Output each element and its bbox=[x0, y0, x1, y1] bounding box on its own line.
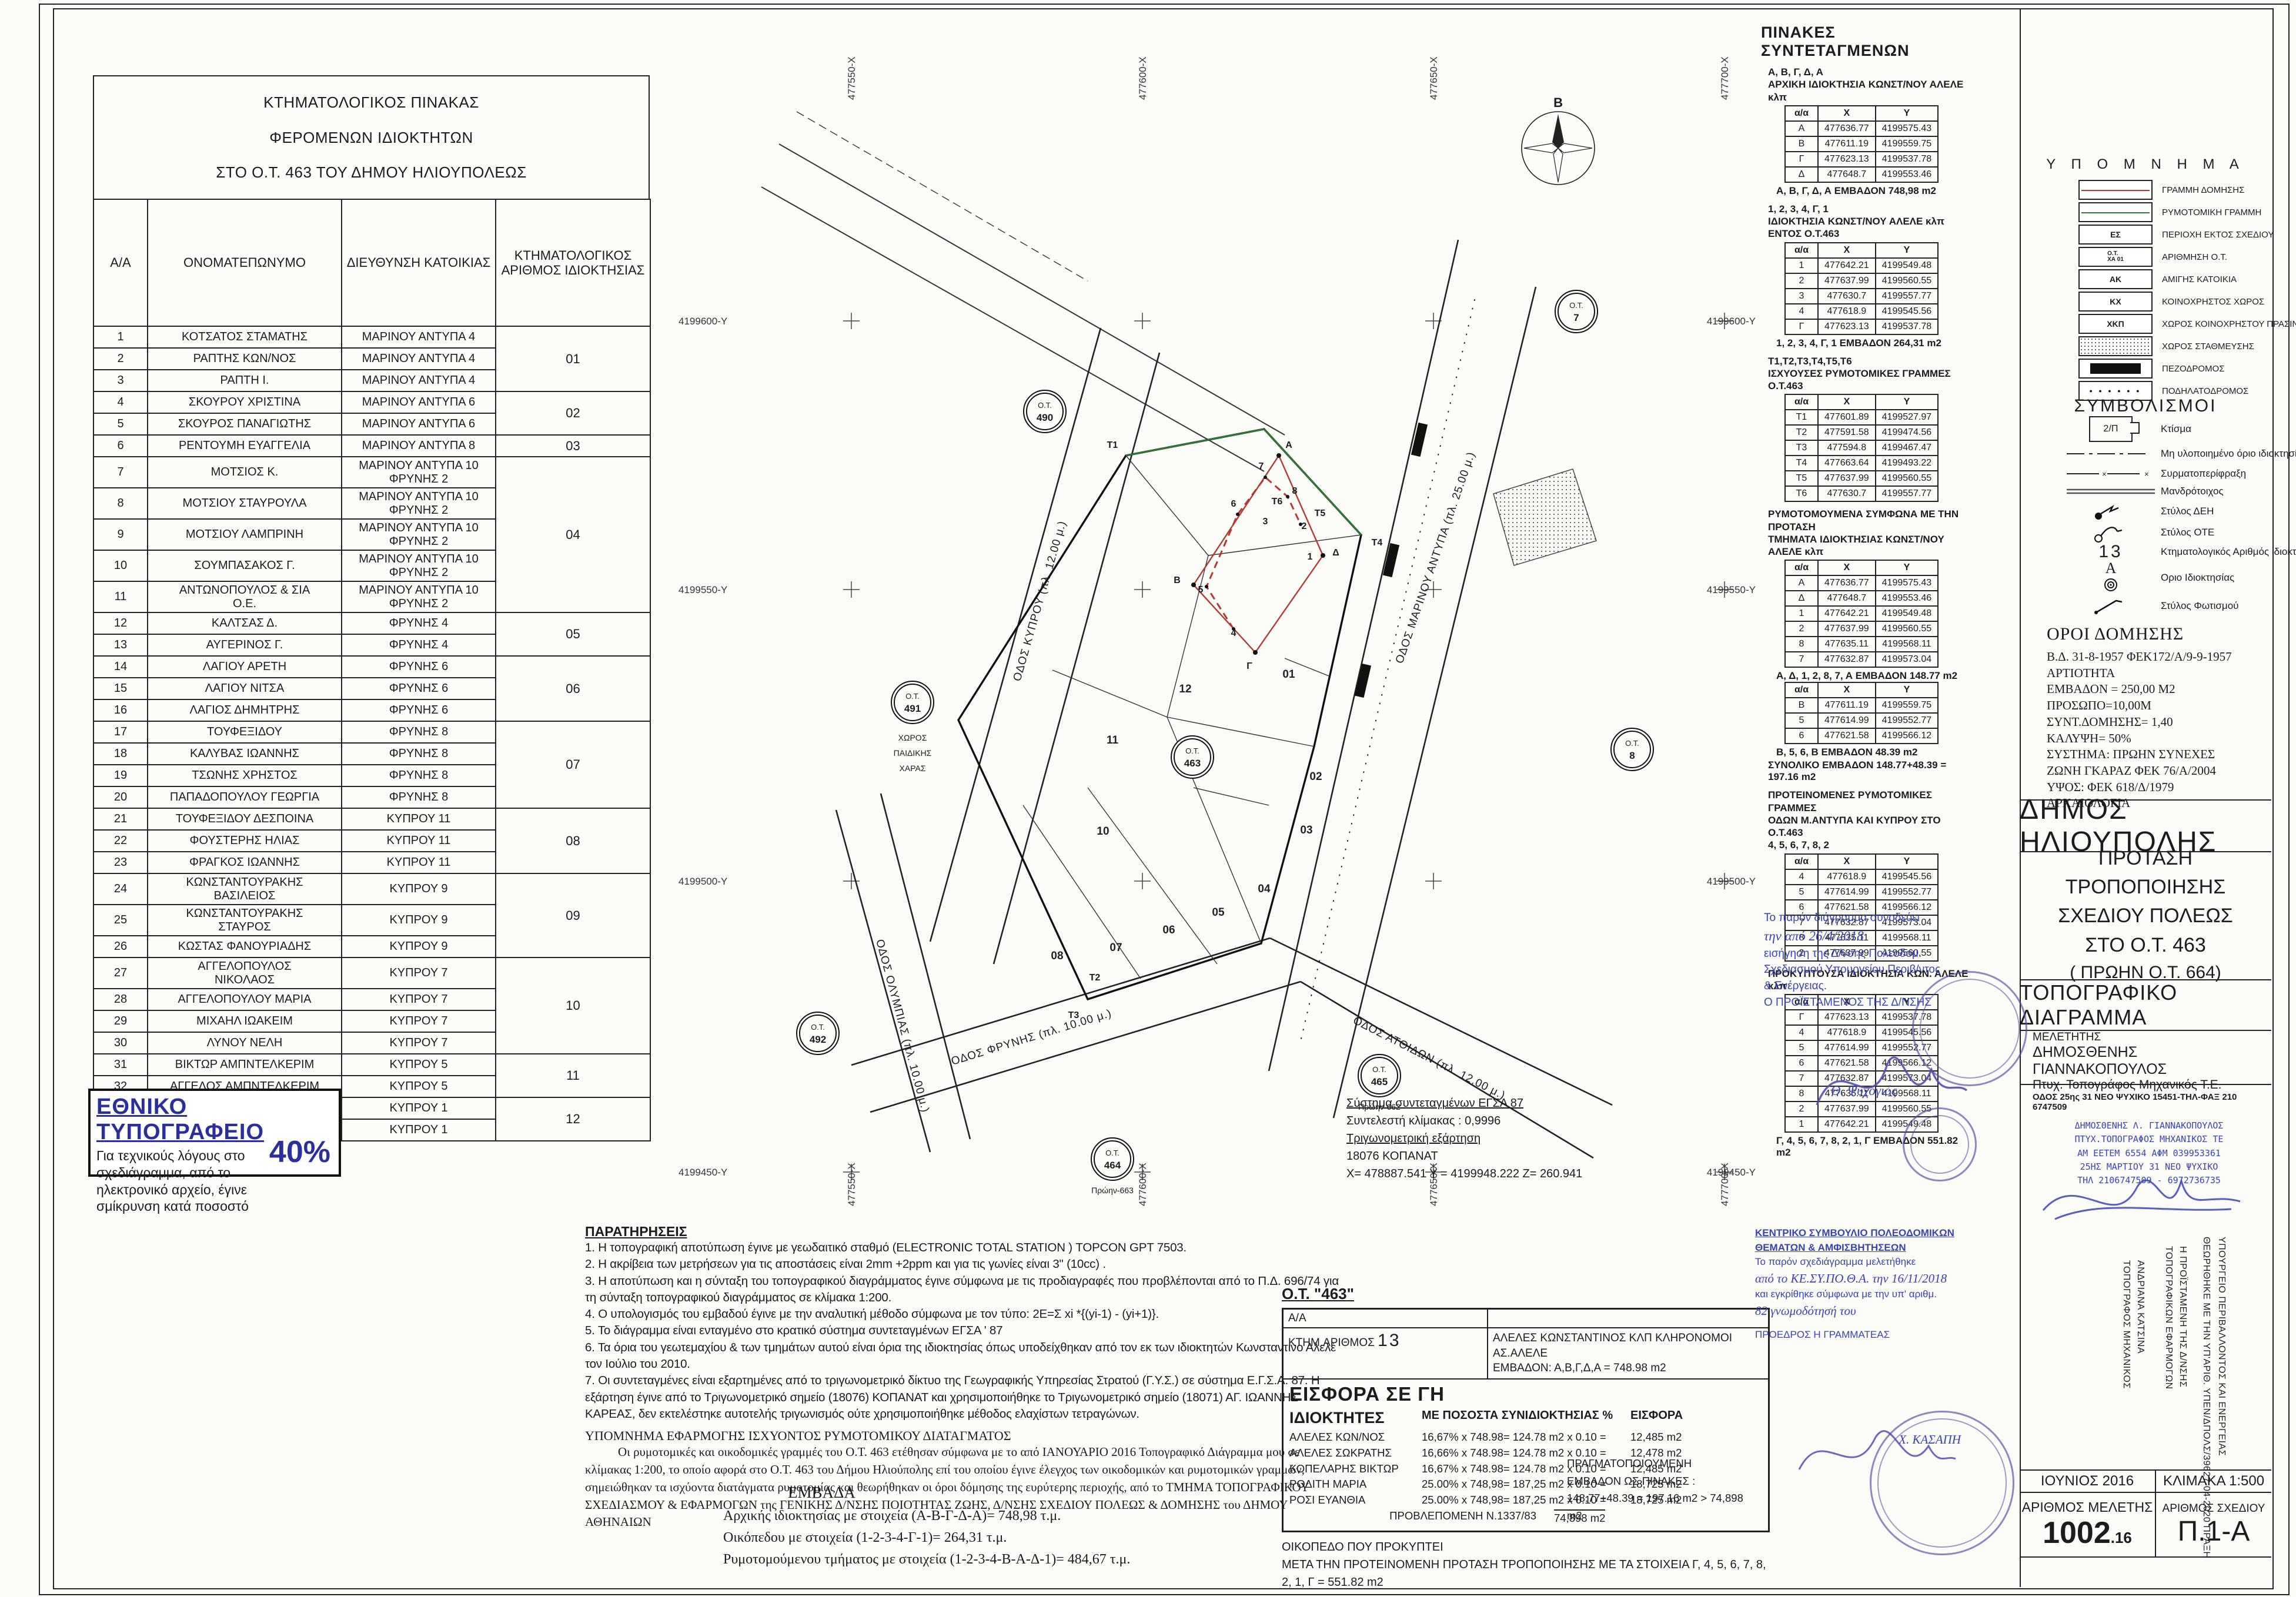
col-header-aa: Α/Α bbox=[93, 199, 148, 326]
coord-cell: 4 bbox=[1785, 869, 1818, 885]
legend-label: ΠΟΔΗΛΑΤΟΔΡΟΜΟΣ bbox=[2162, 386, 2248, 396]
svg-text:Β: Β bbox=[1174, 575, 1181, 585]
ot463-header: Ο.Τ. "463" bbox=[1282, 1285, 1770, 1303]
owner-name: ΚΩΝΣΤΑΝΤΟΥΡΑΚΗΣΣΤΑΥΡΟΣ bbox=[148, 905, 342, 936]
coord-cell: 4199537.78 bbox=[1876, 319, 1939, 334]
cadastral-title-line1: ΚΤΗΜΑΤΟΛΟΓΙΚΟΣ ΠΙΝΑΚΑΣ bbox=[94, 93, 649, 112]
building-term-line: ΕΜΒΑΔΟΝ = 250,00 Μ2 ΠΡΟΣΩΠΟ=10,00Μ bbox=[2047, 681, 2258, 714]
coord-col-header: Y bbox=[1876, 854, 1939, 869]
kesypotha-line: Το παρόν σχεδιάγραμμα μελετήθηκε bbox=[1755, 1255, 1961, 1270]
svg-text:Τ4: Τ4 bbox=[1372, 538, 1383, 548]
coord-cell: 4 bbox=[1785, 304, 1818, 319]
resulting-plot-line2: ΜΕΤΑ ΤΗΝ ΠΡΟΤΕΙΝΟΜΕΝΗ ΠΡΟΤΑΣΗ ΤΡΟΠΟΠΟΙΗΣ… bbox=[1282, 1556, 1770, 1591]
building-term-line: ΑΡΤΙΟΤΗΤΑ bbox=[2047, 665, 2258, 682]
row-number: 17 bbox=[93, 721, 148, 743]
survey-map: Β 477550-X477550-X477600-X477600-X477650… bbox=[676, 24, 1758, 1211]
owner-address: ΦΡΥΝΗΣ 8 bbox=[342, 765, 496, 786]
legend-item: ΚΧΚΟΙΝΟΧΡΗΣΤΟΣ ΧΩΡΟΣ bbox=[2078, 292, 2264, 312]
row-number: 4 bbox=[93, 391, 148, 413]
row-number: 16 bbox=[93, 699, 148, 721]
ktim-number: 06 bbox=[496, 656, 650, 721]
owner-address: ΜΑΡΙΝΟΥ ΑΝΤΥΠΑ 4 bbox=[342, 370, 496, 391]
director-signature bbox=[1799, 1034, 1976, 1134]
geodetic-reference-note: Σύστημα συντεταγμένων ΕΓΣΑ 87Συντελεστή … bbox=[1346, 1094, 1582, 1183]
svg-text:Β: Β bbox=[1553, 95, 1563, 110]
col-header-address: ΔΙΕΥΘΥΝΣΗ ΚΑΤΟΙΚΙΑΣ bbox=[342, 199, 496, 326]
svg-text:4199550-Y: 4199550-Y bbox=[679, 584, 727, 595]
building-term-line: Β.Δ. 31-8-1957 ΦΕΚ172/Α/9-9-1957 bbox=[2047, 649, 2258, 665]
svg-text:Ο.Τ.: Ο.Τ. bbox=[1625, 739, 1639, 748]
coord-col-header: α/α bbox=[1785, 243, 1818, 258]
observation-item: 2. Η ακρίβεια των μετρήσεων για τις αποσ… bbox=[585, 1256, 1343, 1273]
symbol-dashdot bbox=[2061, 451, 2161, 457]
owner-name: ΑΓΓΕΛΟΠΟΥΛΟΥ ΜΑΡΙΑ bbox=[148, 989, 342, 1010]
row-number: 27 bbox=[93, 957, 148, 989]
svg-text:ΟΔΟΣ ΜΑΡΙΝΟΥ ΑΝΤΥΠΑ (πλ. 25: ΟΔΟΣ ΜΑΡΙΝΟΥ ΑΝΤΥΠΑ (πλ. 25.00 μ.) bbox=[1393, 450, 1478, 665]
contribution-row: ΑΛΕΛΕΣ ΚΩΝ/ΝΟΣ16,67% x 748.98= 124.78 m2… bbox=[1289, 1429, 1762, 1445]
owner-address: ΜΑΡΙΝΟΥ ΑΝΤΥΠΑ 10ΦΡΥΝΗΣ 2 bbox=[342, 457, 496, 488]
director-note-line: Σχεδιασμού Υπουργείου Περιβ/ντος bbox=[1764, 962, 1964, 978]
existing-rymotomiki-line bbox=[1126, 429, 1361, 535]
building-term-line: ΚΑΛΥΨΗ= 50% bbox=[2047, 731, 2258, 747]
row-number: 13 bbox=[93, 634, 148, 656]
observation-item: 7. Οι συντεταγμένες είναι εξαρτημένες απ… bbox=[585, 1372, 1343, 1422]
symbol-wall bbox=[2061, 488, 2161, 495]
coord-cell: 477601.89 bbox=[1818, 410, 1876, 425]
coord-cell: 4199493.22 bbox=[1876, 456, 1939, 471]
ot463-table: Α/Α ΚΤΗΜ.ΑΡΙΘΜΟΣ 13 ΑΛΕΛΕΣ ΚΩΝΣΤΑΝΤΙΝΟΣ … bbox=[1282, 1308, 1770, 1532]
geodetic-line: Σύστημα συντεταγμένων ΕΓΣΑ 87 bbox=[1346, 1094, 1582, 1112]
application-legend-title: ΥΠΟΜΝΗΜΑ ΕΦΑΡΜΟΓΗΣ ΙΣΧΥΟΝΤΟΣ ΡΥΜΟΤΟΜΙΚΟΥ… bbox=[585, 1428, 1343, 1444]
row-number: 9 bbox=[93, 519, 148, 550]
coord-cell: Τ6 bbox=[1785, 486, 1818, 501]
coord-cell: Γ bbox=[1785, 152, 1818, 167]
coord-cell: 4199560.55 bbox=[1876, 273, 1939, 289]
owner-name: ΤΣΩΝΗΣ ΧΡΗΣΤΟΣ bbox=[148, 765, 342, 786]
shrink-percent: 40% bbox=[269, 1134, 330, 1170]
coord-cell: 4199575.43 bbox=[1876, 121, 1939, 136]
geodetic-line: Τριγωνομετρική εξάρτηση bbox=[1346, 1130, 1582, 1147]
legend-label: ΚΟΙΝΟΧΡΗΣΤΟΣ ΧΩΡΟΣ bbox=[2162, 297, 2264, 307]
coord-col-header: Y bbox=[1876, 243, 1939, 258]
coord-col-header: α/α bbox=[1785, 106, 1818, 121]
legend-symbol-ΚΧ: ΚΧ bbox=[2078, 292, 2153, 312]
cadastral-title-line3: ΣΤΟ Ο.Τ. 463 ΤΟΥ ΔΗΜΟΥ ΗΛΙΟΥΠΟΛΕΩΣ bbox=[94, 163, 649, 182]
svg-text:3: 3 bbox=[1263, 517, 1268, 527]
coord-cell: Γ bbox=[1785, 319, 1818, 334]
svg-text:2: 2 bbox=[1302, 521, 1307, 531]
row-number: 30 bbox=[93, 1032, 148, 1054]
symbol-item: 13Κτηματολογικός Αριθμός ιδιοκτησίας. bbox=[2061, 542, 2296, 562]
owner-address: ΜΑΡΙΝΟΥ ΑΝΤΥΠΑ 4 bbox=[342, 348, 496, 370]
row-number: 10 bbox=[93, 550, 148, 581]
owner-name: ΦΡΑΓΚΟΣ ΙΩΑΝΝΗΣ bbox=[148, 852, 342, 873]
ktim-number: 08 bbox=[496, 808, 650, 873]
coord-col-header: X bbox=[1818, 106, 1876, 121]
coord-cell: 4199553.46 bbox=[1876, 167, 1939, 182]
row-number: 29 bbox=[93, 1010, 148, 1032]
ot463-aa: Α/Α bbox=[1284, 1310, 1488, 1327]
coord-cell: Τ1 bbox=[1785, 410, 1818, 425]
surveyor-title: Πτυχ. Τοπογράφος Μηχανικός Τ.Ε. bbox=[2033, 1078, 2271, 1092]
coord-cell: Δ bbox=[1785, 167, 1818, 182]
coord-cell: 477621.58 bbox=[1818, 728, 1876, 744]
legend-symbol-redline bbox=[2078, 180, 2153, 200]
coord-cell: 4199545.56 bbox=[1876, 869, 1939, 885]
legend-label: ΠΕΖΟΔΡΟΜΟΣ bbox=[2162, 364, 2224, 374]
kesypotha-line: από το ΚΕ.ΣΥ.ΠΟ.Θ.Α. την 16/11/2018 bbox=[1755, 1270, 1961, 1287]
cadastral-row: 21ΤΟΥΦΕΞΙΔΟΥ ΔΕΣΠΟΙΝΑΚΥΠΡΟΥ 1108 bbox=[93, 808, 650, 830]
symbol-label: Κτηματολογικός Αριθμός ιδιοκτησίας. bbox=[2161, 546, 2296, 558]
svg-text:5: 5 bbox=[1198, 585, 1204, 595]
owner-address: ΜΑΡΙΝΟΥ ΑΝΤΥΠΑ 4 bbox=[342, 326, 496, 348]
svg-text:×: × bbox=[2144, 470, 2149, 478]
eisfora-title: ΕΙΣΦΟΡΑ ΣΕ ΓΗ bbox=[1289, 1383, 1762, 1405]
coord-cell: 4199467.47 bbox=[1876, 440, 1939, 456]
coord-cell: 477648.7 bbox=[1818, 591, 1876, 606]
ktim-number: 07 bbox=[496, 721, 650, 808]
director-note-line: εισήγηση της Δ/νσης Πολεοδομ. bbox=[1764, 946, 1964, 962]
ot463-owner-cell: ΑΛΕΛΕΣ ΚΩΝΣΤΑΝΤΙΝΟΣ ΚΛΠ ΚΛΗΡΟΝΟΜΟΙ ΑΣ.ΑΛ… bbox=[1488, 1328, 1768, 1378]
contrib-value: 12,485 m2 bbox=[1630, 1429, 1695, 1445]
symbols-title: ΣΥΜΒΟΛΙΣΜΟΙ bbox=[2020, 396, 2271, 416]
symbol-item: Μη υλοποιημένο όριο ιδιοκτησίας bbox=[2061, 448, 2296, 460]
symbol-num: 13 bbox=[2061, 542, 2161, 562]
owner-address: ΚΥΠΡΟΥ 11 bbox=[342, 808, 496, 830]
symbol-label: Στύλος Φωτισμού bbox=[2161, 600, 2238, 612]
owner-address: ΚΥΠΡΟΥ 9 bbox=[342, 936, 496, 957]
ministry-approval-line: ΥΠΟΥΡΓΕΙΟ ΠΕΡΙΒΑΛΛΟΝΤΟΣ ΚΑΙ ΕΝΕΡΓΕΙΑΣ bbox=[2216, 1237, 2227, 1456]
legend-symbol-ΕΣ: ΕΣ bbox=[2078, 225, 2153, 245]
coord-cell: 2 bbox=[1785, 621, 1818, 637]
owner-name: ΚΟΤΣΑΤΟΣ ΣΤΑΜΑΤΗΣ bbox=[148, 326, 342, 348]
resulting-plot-note: ΟΙΚΟΠΕΔΟ ΠΟΥ ΠΡΟΚΥΠΤΕΙ ΜΕΤΑ ΤΗΝ ΠΡΟΤΕΙΝΟ… bbox=[1282, 1538, 1770, 1591]
drawing-type-title: ΤΟΠΟΓΡΑΦΙΚΟ ΔΙΑΓΡΑΜΜΑ bbox=[2020, 979, 2271, 1031]
engineer-stamp-line: ΠΤΥΧ.ΤΟΠΟΓΡΑΦΟΣ ΜΗΧΑΝΙΚΟΣ ΤΕ bbox=[2037, 1133, 2261, 1146]
coord-col-header: α/α bbox=[1785, 560, 1818, 575]
symbol-label: Στύλος ΔΕΗ bbox=[2161, 505, 2214, 517]
symbol-item: Στύλος Φωτισμού bbox=[2061, 596, 2238, 616]
owner-address: ΦΡΥΝΗΣ 8 bbox=[342, 786, 496, 808]
parking-area bbox=[1493, 469, 1596, 565]
cadastral-row: 4ΣΚΟΥΡΟΥ ΧΡΙΣΤΙΝΑΜΑΡΙΝΟΥ ΑΝΤΥΠΑ 602 bbox=[93, 391, 650, 413]
coord-cell: 477611.19 bbox=[1818, 136, 1876, 152]
coord-cell: Δ bbox=[1785, 591, 1818, 606]
owner-name: ΣΚΟΥΡΟΥ ΧΡΙΣΤΙΝΑ bbox=[148, 391, 342, 413]
coord-cell: 4199552.77 bbox=[1876, 885, 1939, 900]
owner-name: ΒΙΚΤΩΡ ΑΜΠΝΤΕΛΚΕΡΙΜ bbox=[148, 1054, 342, 1076]
owner-name: ΣΟΥΜΠΑΣΑΚΟΣ Γ. bbox=[148, 550, 342, 581]
coord-table-total-area: ΣΥΝΟΛΙΚΟ ΕΜΒΑΔΟΝ 148.77+48.39 = 197.16 m… bbox=[1768, 759, 1973, 783]
svg-text:Δ: Δ bbox=[1332, 548, 1339, 558]
coord-cell: 4199552.77 bbox=[1876, 713, 1939, 728]
svg-text:Ο.Τ.: Ο.Τ. bbox=[1038, 401, 1052, 410]
cadastral-row: 12ΚΑΛΤΣΑΣ Δ.ΦΡΥΝΗΣ 405 bbox=[93, 612, 650, 634]
cadastral-title: ΚΤΗΜΑΤΟΛΟΓΙΚΟΣ ΠΙΝΑΚΑΣ ΦΕΡΟΜΕΝΩΝ ΙΔΙΟΚΤΗ… bbox=[93, 75, 650, 199]
area-line: Οικόπεδου με στοιχεία (1-2-3-4-Γ-1)= 264… bbox=[723, 1527, 1370, 1549]
row-number: 12 bbox=[93, 612, 148, 634]
svg-text:477550-X: 477550-X bbox=[846, 56, 857, 100]
coord-cell: 477623.13 bbox=[1818, 319, 1876, 334]
coord-col-header: X bbox=[1818, 394, 1876, 410]
legend-item: ΡΥΜΟΤΟΜΙΚΗ ΓΡΑΜΜΗ bbox=[2078, 202, 2261, 222]
owner-name: ΑΓΓΕΛΟΠΟΥΛΟΣΝΙΚΟΛΑΟΣ bbox=[148, 957, 342, 989]
coord-col-header: X bbox=[1818, 682, 1876, 698]
coord-cell: 477611.19 bbox=[1818, 698, 1876, 713]
owner-name: ΜΟΤΣΙΟΥ ΛΑΜΠΡΙΝΗ bbox=[148, 519, 342, 550]
symbol-label: Στύλος ΟΤΕ bbox=[2161, 527, 2214, 538]
symbol-item: ΑΟριο Ιδιοκτησίας bbox=[2061, 560, 2234, 595]
owner-address: ΜΑΡΙΝΟΥ ΑΝΤΥΠΑ 10ΦΡΥΝΗΣ 2 bbox=[342, 550, 496, 581]
geodetic-line: Συντελεστή κλίμακας : 0,9996 bbox=[1346, 1112, 1582, 1130]
coord-cell: 477637.99 bbox=[1818, 471, 1876, 486]
coord-cell: 477594.8 bbox=[1818, 440, 1876, 456]
cadastral-row: 1ΚΟΤΣΑΤΟΣ ΣΤΑΜΑΤΗΣΜΑΡΙΝΟΥ ΑΝΤΥΠΑ 401 bbox=[93, 326, 650, 348]
symbol-label: Μανδρότοιχος bbox=[2161, 486, 2224, 497]
proposal-line1: ΠΡΟΤΑΣΗ ΤΡΟΠΟΠΟΙΗΣΗΣ bbox=[2020, 844, 2271, 902]
svg-text:8: 8 bbox=[1629, 750, 1635, 761]
svg-text:10: 10 bbox=[1097, 825, 1109, 838]
owner-address: ΦΡΥΝΗΣ 8 bbox=[342, 721, 496, 743]
ministry-approval-line: Η ΠΡΟΪΣΤΑΜΕΝΗ ΤΗΣ Δ/ΝΣΗΣ bbox=[2177, 1246, 2188, 1387]
geodetic-line: 18076 ΚΟΠΑΝΑΤ bbox=[1346, 1147, 1582, 1165]
legend-item: ΧΚΠΧΩΡΟΣ ΚΟΙΝΟΧΡΗΣΤΟΥ ΠΡΑΣΙΝΟΥ bbox=[2078, 314, 2296, 334]
coord-col-header: X bbox=[1818, 243, 1876, 258]
street-lines bbox=[836, 240, 1612, 1158]
observation-item: 5. Το διάγραμμα είναι ενταγμένο στο κρατ… bbox=[585, 1323, 1343, 1339]
coord-table-label: ΡΥΜΟΤΟΜΟΥΜΕΝΑ ΣΥΜΦΩΝΑ ΜΕ ΤΗΝ ΠΡΟΤΑΣΗ ΤΜΗ… bbox=[1768, 508, 1973, 558]
owner-address: ΦΡΥΝΗΣ 4 bbox=[342, 634, 496, 656]
cadastral-table-section: ΚΤΗΜΑΤΟΛΟΓΙΚΟΣ ΠΙΝΑΚΑΣ ΦΕΡΟΜΕΝΩΝ ΙΔΙΟΚΤΗ… bbox=[93, 75, 650, 1141]
row-number: 14 bbox=[93, 656, 148, 678]
owner-address: ΚΥΠΡΟΥ 7 bbox=[342, 957, 496, 989]
svg-text:477600-X: 477600-X bbox=[1137, 56, 1148, 100]
svg-text:4199600-Y: 4199600-Y bbox=[1707, 316, 1756, 327]
coord-cell: 5 bbox=[1785, 713, 1818, 728]
engineer-stamp-line: ΔΗΜΟΣΘΕΝΗΣ Λ. ΓΙΑΝΝΑΚΟΠΟΥΛΟΣ bbox=[2037, 1119, 2261, 1133]
areas-section: ΕΜΒΑΔΑ Αρχικής ιδιοκτησίας με στοιχεία (… bbox=[723, 1484, 1370, 1571]
owner-address: ΚΥΠΡΟΥ 11 bbox=[342, 852, 496, 873]
contrib-owner: ΑΛΕΛΕΣ ΣΩΚΡΑΤΗΣ bbox=[1289, 1445, 1422, 1461]
legend-symbol-ΑΚ: ΑΚ bbox=[2078, 269, 2153, 289]
coord-cell: 4199474.56 bbox=[1876, 425, 1939, 440]
coord-cell: 477614.99 bbox=[1818, 713, 1876, 728]
owner-name: ΠΑΠΑΔΟΠΟΥΛΟΥ ΓΕΩΡΓΙΑ bbox=[148, 786, 342, 808]
symbol-deh bbox=[2061, 501, 2161, 522]
cadastral-row: 17ΤΟΥΦΕΞΙΔΟΥΦΡΥΝΗΣ 807 bbox=[93, 721, 650, 743]
owner-name: ΑΥΓΕΡΙΝΟΣ Γ. bbox=[148, 634, 342, 656]
svg-text:4199500-Y: 4199500-Y bbox=[679, 876, 727, 887]
coord-table-area: Β, 5, 6, Β ΕΜΒΑΔΟΝ 48.39 m2 bbox=[1776, 746, 1973, 758]
legend-symbol-pezo bbox=[2078, 359, 2153, 379]
coord-cell: 4199566.12 bbox=[1876, 728, 1939, 744]
ktim-number: 09 bbox=[496, 873, 650, 957]
coord-cell: Τ4 bbox=[1785, 456, 1818, 471]
row-number: 21 bbox=[93, 808, 148, 830]
legend-label: ΠΕΡΙΟΧΗ ΕΚΤΟΣ ΣΧΕΔΙΟΥ bbox=[2162, 230, 2274, 240]
cadastral-row: 14ΛΑΓΙΟΥ ΑΡΕΤΗΦΡΥΝΗΣ 606 bbox=[93, 656, 650, 678]
coord-cell: 477618.9 bbox=[1818, 304, 1876, 319]
ktim-number: 13 bbox=[1378, 1331, 1401, 1350]
symbol-ktisma: 2/Π bbox=[2061, 416, 2161, 442]
surveyor-address: ΟΔΟΣ 25ης 31 ΝΕΟ ΨΥΧΙΚΟ 15451-ΤΗΛ-ΦΑΞ 21… bbox=[2033, 1092, 2271, 1112]
coord-cell: 477635.11 bbox=[1818, 637, 1876, 652]
svg-text:Τ3: Τ3 bbox=[1068, 1010, 1080, 1020]
coord-col-header: α/α bbox=[1785, 682, 1818, 698]
row-number: 28 bbox=[93, 989, 148, 1010]
surveyor-name: ΔΗΜΟΣΘΕΝΗΣ ΓΙΑΝΝΑΚΟΠΟΥΛΟΣ bbox=[2033, 1044, 2271, 1078]
coord-cell: 477636.77 bbox=[1818, 121, 1876, 136]
coord-cell: 1 bbox=[1785, 258, 1818, 273]
coord-cell: 4199573.04 bbox=[1876, 652, 1939, 667]
coord-cell: 4199560.55 bbox=[1876, 621, 1939, 637]
ktim-number: 01 bbox=[496, 326, 650, 391]
boundary-points bbox=[1191, 453, 1325, 655]
owner-address: ΚΥΠΡΟΥ 5 bbox=[342, 1054, 496, 1076]
owner-line2: ΕΜΒΑΔΟΝ: Α,Β,Γ,Δ,Α = 748.98 m2 bbox=[1493, 1361, 1763, 1376]
symbol-item: Στύλος ΟΤΕ bbox=[2061, 521, 2214, 544]
col-owners: ΙΔΙΟΚΤΗΤΕΣ bbox=[1289, 1409, 1422, 1427]
coord-table: α/αXYΑ477636.774199575.43Β477611.1941995… bbox=[1784, 105, 1939, 183]
svg-text:477650-X: 477650-X bbox=[1428, 56, 1439, 100]
owner-line1: ΑΛΕΛΕΣ ΚΩΝΣΤΑΝΤΙΝΟΣ ΚΛΠ ΚΛΗΡΟΝΟΜΟΙ ΑΣ.ΑΛ… bbox=[1493, 1331, 1763, 1361]
coord-cell: 4199549.48 bbox=[1876, 606, 1939, 621]
symbol-item: 2/ΠΚτίσμα bbox=[2061, 416, 2191, 442]
coord-cell: 4199559.75 bbox=[1876, 136, 1939, 152]
ktim-number: 12 bbox=[496, 1097, 650, 1141]
svg-text:06: 06 bbox=[1162, 924, 1175, 936]
cadastral-row: 7ΜΟΤΣΙΟΣ Κ.ΜΑΡΙΝΟΥ ΑΝΤΥΠΑ 10ΦΡΥΝΗΣ 204 bbox=[93, 457, 650, 488]
owner-address: ΦΡΥΝΗΣ 6 bbox=[342, 699, 496, 721]
svg-text:01: 01 bbox=[1282, 668, 1295, 681]
director-note-line: Το παρόν διάγραμμα συνοδεύει bbox=[1764, 910, 1964, 926]
cadastral-row: 27ΑΓΓΕΛΟΠΟΥΛΟΣΝΙΚΟΛΑΟΣΚΥΠΡΟΥ 710 bbox=[93, 957, 650, 989]
symbol-ote bbox=[2061, 521, 2161, 544]
observation-item: 1. Η τοπογραφική αποτύπωση έγινε με γεωδ… bbox=[585, 1240, 1343, 1256]
coord-table: α/αXYΑ477636.774199575.43Δ477648.7419955… bbox=[1784, 560, 1939, 668]
svg-text:ΠΑΙΔΙΚΗΣ: ΠΑΙΔΙΚΗΣ bbox=[894, 748, 932, 758]
owner-address: ΦΡΥΝΗΣ 4 bbox=[342, 612, 496, 634]
date-cell: ΙΟΥΝΙΟΣ 2016 bbox=[2020, 1469, 2156, 1492]
contrib-owner: ΡΟΣΙ ΕΥΑΝΘΙΑ bbox=[1289, 1492, 1422, 1508]
coord-panel-title: ΠΙΝΑΚΕΣ ΣΥΝΤΕΤΑΓΜΕΝΩΝ bbox=[1761, 24, 1973, 60]
building-term-line: ΖΩΝΗ ΓΚΑΡΑΖ ΦΕΚ 76/Α/2004 bbox=[2047, 763, 2258, 779]
svg-text:7: 7 bbox=[1573, 312, 1579, 323]
cadastral-table: Α/Α ΟΝΟΜΑΤΕΠΩΝΥΜΟ ΔΙΕΥΘΥΝΣΗ ΚΑΤΟΙΚΙΑΣ ΚΤ… bbox=[93, 199, 651, 1141]
drawing-cell: ΑΡΙΘΜΟΣ ΣΧΕΔΙΟΥΠ.1-Α bbox=[2156, 1492, 2271, 1558]
owner-name: ΚΑΛΤΣΑΣ Δ. bbox=[148, 612, 342, 634]
contrib-owner: ΡΟΔΙΤΗ ΜΑΡΙΑ bbox=[1289, 1477, 1422, 1492]
coord-col-header: X bbox=[1818, 854, 1876, 869]
coord-cell: 1 bbox=[1785, 606, 1818, 621]
coord-cell: 3 bbox=[1785, 289, 1818, 304]
topographic-sheet: ΚΤΗΜΑΤΟΛΟΓΙΚΟΣ ΠΙΝΑΚΑΣ ΦΕΡΟΜΕΝΩΝ ΙΔΙΟΚΤΗ… bbox=[0, 0, 2296, 1597]
symbol-light bbox=[2061, 596, 2161, 616]
svg-text:8: 8 bbox=[1292, 486, 1298, 496]
kesypotha-line: και εγκρίθηκε σύμφωνα με την υπ' αριθμ. bbox=[1755, 1287, 1961, 1302]
owner-address: ΚΥΠΡΟΥ 9 bbox=[342, 873, 496, 905]
svg-text:464: 464 bbox=[1104, 1160, 1121, 1171]
svg-text:04: 04 bbox=[1258, 883, 1271, 895]
coord-cell: 477663.64 bbox=[1818, 456, 1876, 471]
symbol-item: ××Συρματοπερίφραξη bbox=[2061, 468, 2246, 480]
ministry-approval-line: ΘΕΩΡΗΘΗΚΕ ΜΕ ΤΗΝ ΥΠ'ΑΡΙΘ. ΥΠΕΝ/ΔΠΟΛΣ/396… bbox=[2201, 1237, 2211, 1558]
row-number: 24 bbox=[93, 873, 148, 905]
building-term-line: ΣΥΣΤΗΜΑ: ΠΡΩΗΝ ΣΥΝΕΧΕΣ bbox=[2047, 746, 2258, 763]
ktim-number: 03 bbox=[496, 435, 650, 457]
coord-cell: Τ2 bbox=[1785, 425, 1818, 440]
coord-cell: 4199557.77 bbox=[1876, 289, 1939, 304]
owner-address: ΚΥΠΡΟΥ 7 bbox=[342, 1032, 496, 1054]
svg-text:1: 1 bbox=[1308, 552, 1313, 562]
coord-col-header: Y bbox=[1876, 394, 1939, 410]
row-number: 2 bbox=[93, 348, 148, 370]
svg-text:Τ5: Τ5 bbox=[1315, 508, 1326, 518]
surveyor-label: ΜΕΛΕΤΗΤΗΣ bbox=[2033, 1031, 2271, 1044]
shrink-note-body: Για τεχνικούς λόγους στο σχεδιάγραμμα, α… bbox=[96, 1147, 290, 1215]
owner-name: ΛΥΝΟΥ ΝΕΛΗ bbox=[148, 1032, 342, 1054]
svg-text:11: 11 bbox=[1107, 734, 1119, 746]
owner-address: ΜΑΡΙΝΟΥ ΑΝΤΥΠΑ 6 bbox=[342, 413, 496, 435]
coord-col-header: Y bbox=[1876, 106, 1939, 121]
svg-text:Ο.Τ.: Ο.Τ. bbox=[1105, 1149, 1119, 1157]
owner-name: ΡΑΠΤΗΣ ΚΩΝ/ΝΟΣ bbox=[148, 348, 342, 370]
owner-address: ΜΑΡΙΝΟΥ ΑΝΤΥΠΑ 8 bbox=[342, 435, 496, 457]
coord-cell: 477648.7 bbox=[1818, 167, 1876, 182]
owner-name: ΣΚΟΥΡΟΣ ΠΑΝΑΓΙΩΤΗΣ bbox=[148, 413, 342, 435]
legend-label: ΧΩΡΟΣ ΚΟΙΝΟΧΡΗΣΤΟΥ ΠΡΑΣΙΝΟΥ bbox=[2162, 319, 2296, 329]
surveyor-block: ΜΕΛΕΤΗΤΗΣ ΔΗΜΟΣΘΕΝΗΣ ΓΙΑΝΝΑΚΟΠΟΥΛΟΣ Πτυχ… bbox=[2020, 1029, 2271, 1085]
coord-table-area: 1, 2, 3, 4, Γ, 1 ΕΜΒΑΔΟΝ 264,31 m2 bbox=[1776, 337, 1973, 349]
coord-cell: 477614.99 bbox=[1818, 885, 1876, 900]
owner-address: ΜΑΡΙΝΟΥ ΑΝΤΥΠΑ 10ΦΡΥΝΗΣ 2 bbox=[342, 519, 496, 550]
cadastral-title-line2: ΦΕΡΟΜΕΝΩΝ ΙΔΙΟΚΤΗΤΩΝ bbox=[94, 129, 649, 147]
ktim-label: ΚΤΗΜ.ΑΡΙΘΜΟΣ bbox=[1288, 1337, 1375, 1349]
coord-table-label: ΠΡΟΤΕΙΝΟΜΕΝΕΣ ΡΥΜΟΤΟΜΙΚΕΣ ΓΡΑΜΜΕΣ ΟΔΩΝ Μ… bbox=[1768, 789, 1973, 851]
row-number: 22 bbox=[93, 830, 148, 852]
svg-text:ΟΔΟΣ ΟΛΥΜΠΙΑΣ (πλ. 10.00 μ.): ΟΔΟΣ ΟΛΥΜΠΙΑΣ (πλ. 10.00 μ.) bbox=[873, 938, 931, 1114]
symbol-orio: Α bbox=[2061, 560, 2161, 595]
coord-table: α/αXY1477642.214199549.482477637.9941995… bbox=[1784, 242, 1939, 335]
owner-name: ΑΝΤΩΝΟΠΟΥΛΟΣ & ΣΙΑΟ.Ε. bbox=[148, 581, 342, 612]
parcel-lines bbox=[1023, 456, 1361, 979]
area-line: Ρυμοτομούμενου τμήματος με στοιχεία (1-2… bbox=[723, 1549, 1370, 1571]
svg-text:492: 492 bbox=[810, 1034, 826, 1045]
realized-note: ΠΡΑΓΜΑΤΟΠΟΙΟΥΜΕΝΗ ΕΜΒΑΔΟΝ ΩΣ ΠΙΝΑΚΕΣ : 1… bbox=[1567, 1455, 1761, 1524]
svg-text:Ο.Τ.: Ο.Τ. bbox=[1185, 746, 1199, 755]
resulting-plot-line1: ΟΙΚΟΠΕΔΟ ΠΟΥ ΠΡΟΚΥΠΤΕΙ bbox=[1282, 1538, 1770, 1556]
coord-cell: Β bbox=[1785, 698, 1818, 713]
coord-col-header: Y bbox=[1876, 560, 1939, 575]
coord-cell: 477630.7 bbox=[1818, 289, 1876, 304]
coord-cell: 477623.13 bbox=[1818, 152, 1876, 167]
legend-label: ΑΡΙΘΜΗΣΗ Ο.Τ. bbox=[2162, 252, 2227, 262]
legend-symbol-ot: Ο.Τ.ΧΑ 01 bbox=[2078, 247, 2153, 267]
coord-col-header: Y bbox=[1876, 682, 1939, 698]
study-cell: ΑΡΙΘΜΟΣ ΜΕΛΕΤΗΣ1002.16 bbox=[2020, 1492, 2156, 1558]
coord-cell: 5 bbox=[1785, 885, 1818, 900]
proposal-line3: ΣΤΟ Ο.Τ. 463 bbox=[2020, 931, 2271, 960]
coord-cell: 477636.77 bbox=[1818, 575, 1876, 591]
property-13-outline bbox=[1194, 456, 1323, 652]
symbol-label: Συρματοπερίφραξη bbox=[2161, 468, 2246, 480]
owner-name: ΚΑΛΥΒΑΣ ΙΩΑΝΝΗΣ bbox=[148, 743, 342, 765]
observations-title: ΠΑΡΑΤΗΡΗΣΕΙΣ bbox=[585, 1224, 1343, 1240]
owner-address: ΚΥΠΡΟΥ 1 bbox=[342, 1119, 496, 1141]
legend-symbol-hatch bbox=[2078, 336, 2153, 356]
legend-item: ΑΚΑΜΙΓΗΣ ΚΑΤΟΙΚΙΑ bbox=[2078, 269, 2237, 289]
realized-line2: ΕΜΒΑΔΟΝ ΩΣ ΠΙΝΑΚΕΣ : bbox=[1567, 1472, 1761, 1490]
